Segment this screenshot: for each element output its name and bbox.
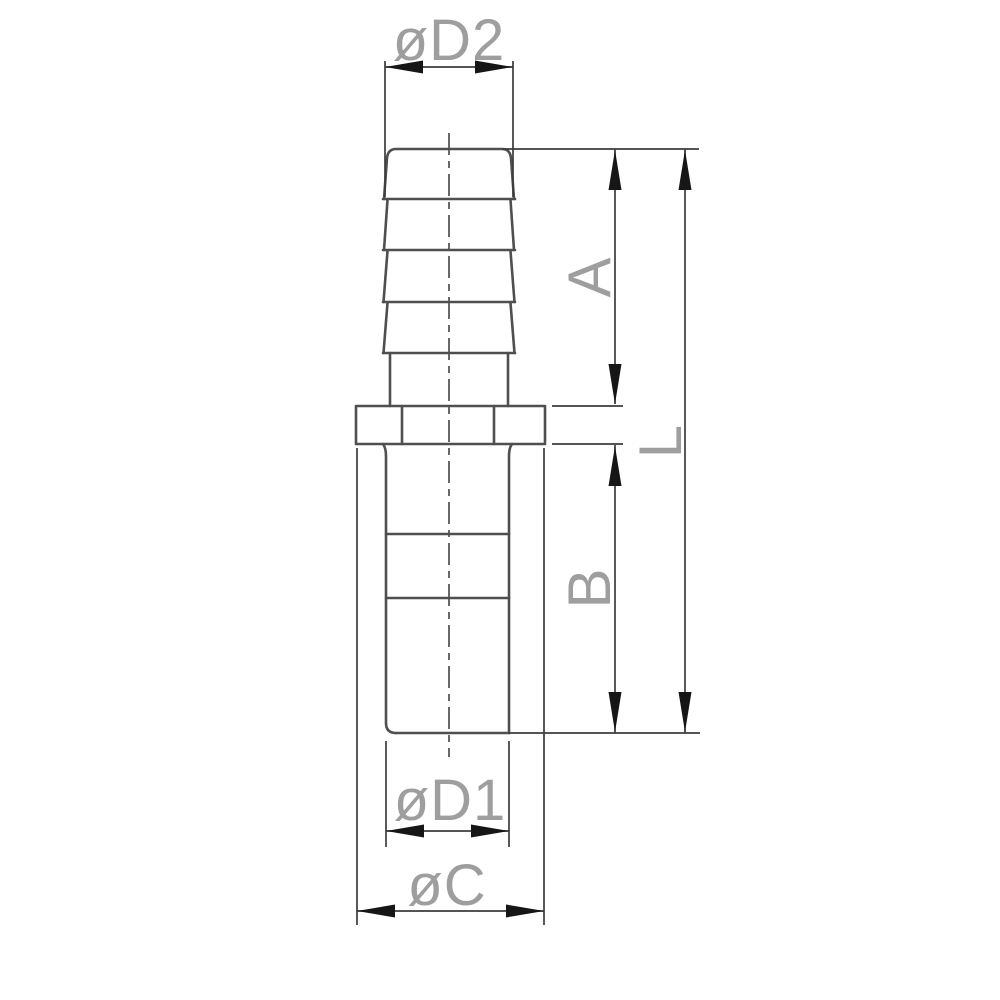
hose-barb-fitting-drawing: øD2 A L B øD1 øC xyxy=(0,0,1000,1000)
hex-flange-flats xyxy=(402,406,494,444)
b-arrow-bottom xyxy=(609,692,622,732)
body-step-lines xyxy=(386,534,509,598)
hex-flange xyxy=(356,406,545,444)
a-arrow-top xyxy=(609,150,622,190)
c-arrow-right xyxy=(506,905,544,918)
label-length-b: B xyxy=(556,567,623,608)
body-left-edge xyxy=(383,444,396,733)
label-length-l: L xyxy=(627,424,694,458)
l-arrow-top xyxy=(679,150,692,190)
l-arrow-bottom xyxy=(679,692,692,732)
fitting-outline xyxy=(356,149,545,733)
label-diameter-c: øC xyxy=(407,853,486,918)
technical-drawing-page: øD2 A L B øD1 øC xyxy=(0,0,1000,1000)
label-length-a: A xyxy=(556,256,623,297)
body-right-edge xyxy=(509,444,512,733)
c-arrow-left xyxy=(357,905,395,918)
flange-extension-lines xyxy=(552,406,623,444)
a-arrow-bottom xyxy=(609,364,622,404)
b-arrow-top xyxy=(609,446,622,486)
label-diameter-d1: øD1 xyxy=(394,768,507,833)
label-diameter-d2: øD2 xyxy=(393,8,506,73)
